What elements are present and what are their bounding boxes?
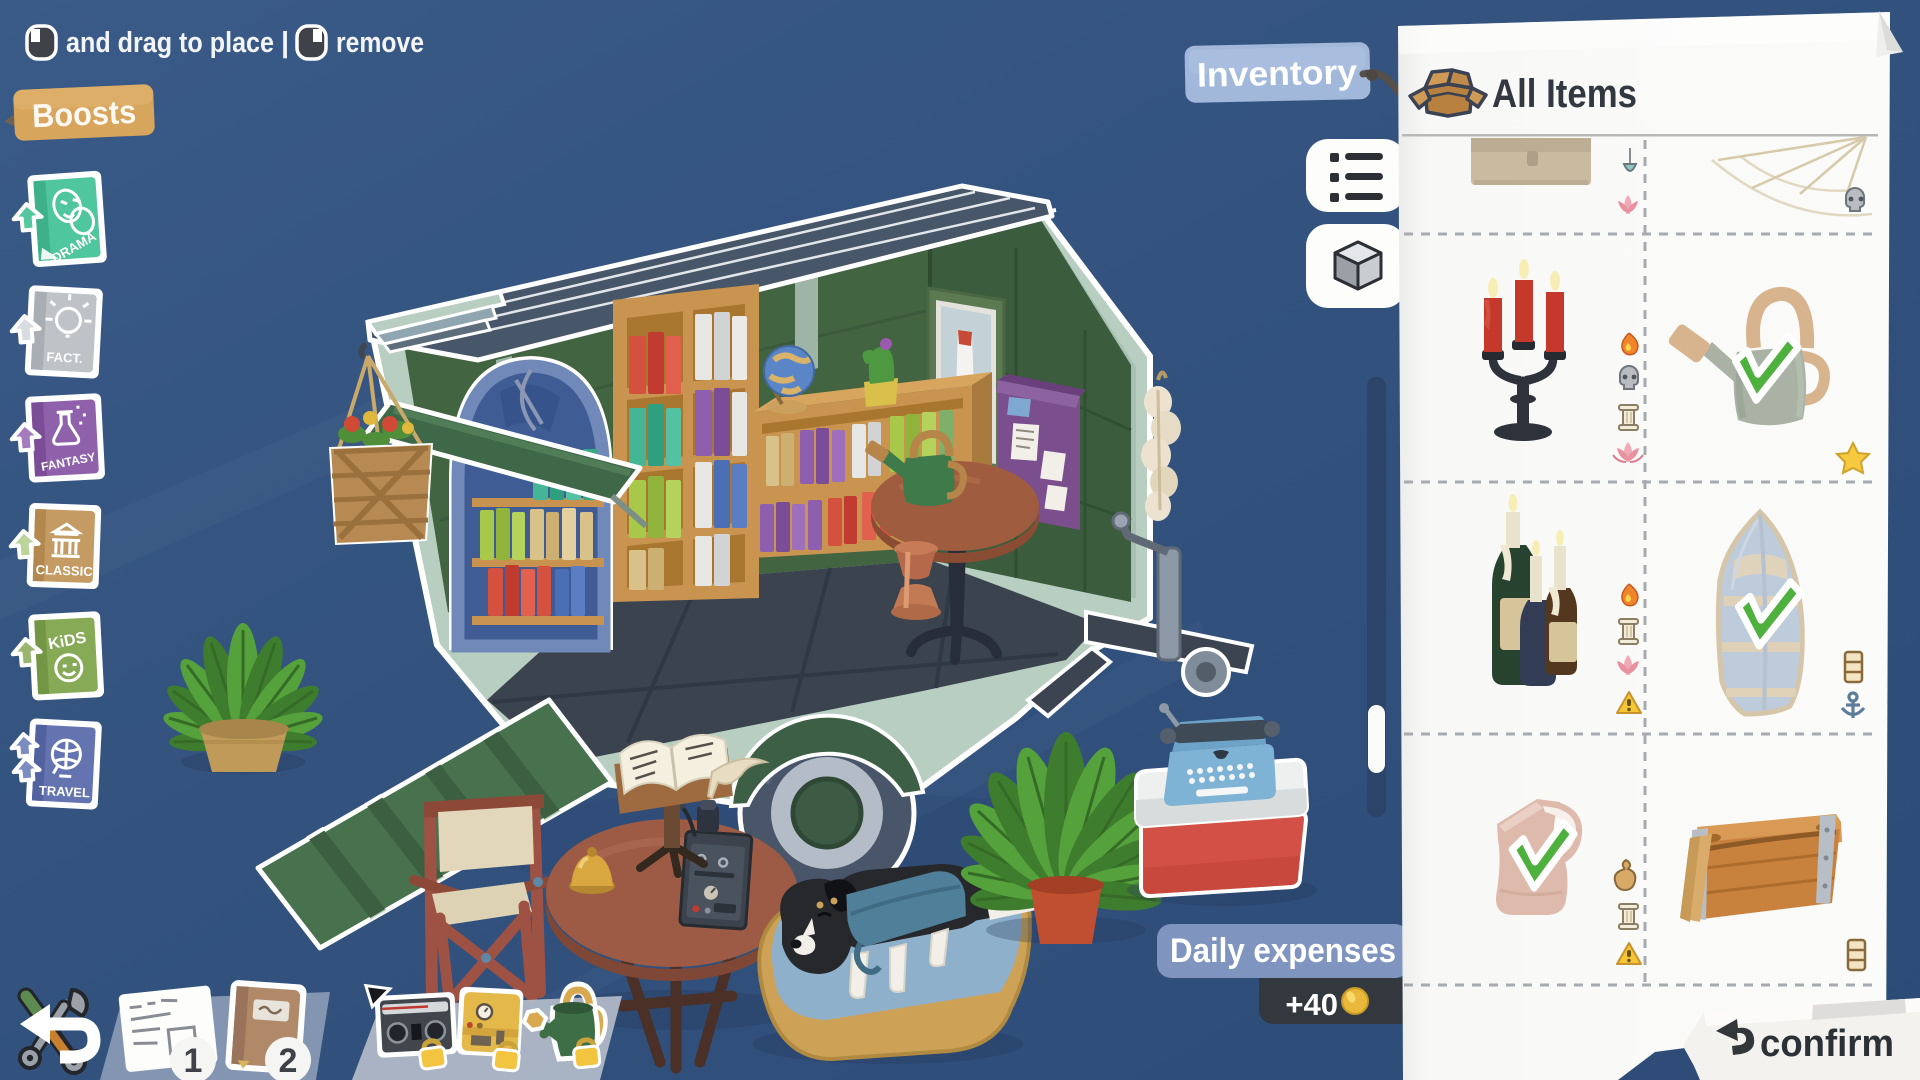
- svg-text:Daily expenses: Daily expenses: [1170, 932, 1396, 970]
- svg-text:|: |: [281, 27, 289, 59]
- svg-text:CLASSIC: CLASSIC: [35, 562, 93, 579]
- svg-text:Inventory: Inventory: [1197, 53, 1358, 94]
- svg-text:Boosts: Boosts: [31, 93, 137, 135]
- svg-text:and drag to place: and drag to place: [66, 27, 274, 59]
- svg-text:+40: +40: [1285, 987, 1338, 1022]
- svg-text:All Items: All Items: [1492, 72, 1637, 116]
- svg-text:FACT.: FACT.: [46, 349, 83, 366]
- svg-text:remove: remove: [336, 27, 424, 59]
- svg-text:1: 1: [184, 1042, 203, 1080]
- svg-text:2: 2: [279, 1042, 298, 1080]
- svg-text:confirm: confirm: [1760, 1023, 1894, 1065]
- svg-text:TRAVEL: TRAVEL: [39, 783, 91, 801]
